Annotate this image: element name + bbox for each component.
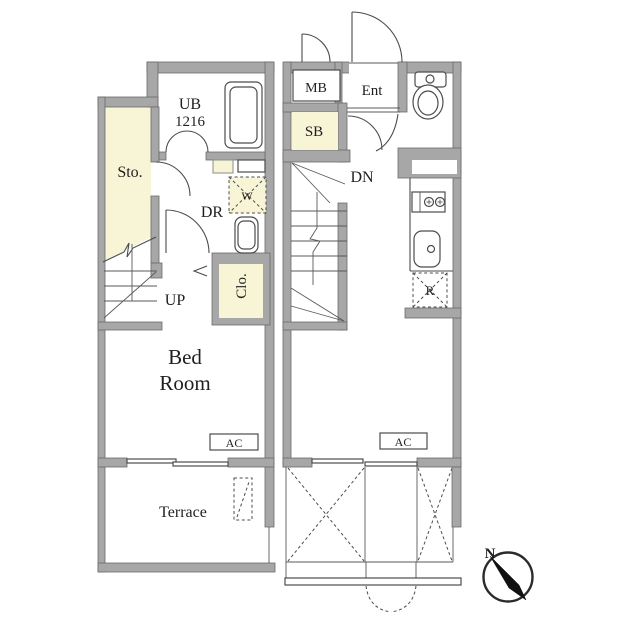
meter-box-door [302, 34, 330, 62]
storage-door-arc [156, 162, 190, 196]
floor-plan-drawing: AC Sto. UB 1216 DR W UP Clo. Bed Room Te… [0, 0, 640, 640]
ac-unit-lower: AC [210, 434, 258, 450]
ac-label-upper: AC [395, 435, 412, 449]
stairs-up-label: UP [165, 292, 186, 309]
vanity-fixture [235, 217, 258, 253]
balcony-gate-arc-left [366, 586, 391, 612]
toilet-door-arc [376, 114, 398, 151]
bedroom-label-line2: Room [159, 371, 210, 395]
washer-label: W [241, 189, 253, 203]
compass: N [484, 546, 533, 602]
stairs-down-label: DN [350, 169, 374, 186]
living-window [312, 459, 417, 466]
kitchen-sink-icon [414, 231, 440, 267]
shoe-box-label: SB [305, 124, 323, 140]
bath-door-arc [166, 131, 208, 152]
entrance-door [352, 12, 402, 62]
north-label: N [485, 546, 496, 562]
balcony [285, 467, 461, 612]
storage-room-area [103, 107, 151, 262]
meter-box-label: MB [305, 81, 327, 96]
bedroom-label-line1: Bed [168, 345, 202, 369]
terrace-slop-sink [234, 478, 252, 520]
terrace-label: Terrace [159, 504, 207, 521]
bedroom-window [127, 459, 228, 466]
bathtub [225, 82, 262, 148]
balcony-wall [452, 467, 461, 527]
shoe-box-door-arc [348, 116, 382, 150]
ac-unit-upper: AC [380, 433, 427, 449]
floor-plan-page: AC Sto. UB 1216 DR W UP Clo. Bed Room Te… [0, 0, 640, 640]
shelf-box [238, 160, 265, 172]
entrance-label: Ent [362, 83, 384, 99]
ac-label-lower: AC [226, 436, 243, 450]
direction-arrow [194, 266, 207, 276]
toilet-icon [413, 72, 446, 119]
stair-break-mark [310, 228, 320, 252]
upper-floor-plan: AC MB Ent SB DN R [283, 12, 461, 612]
balcony-slab [285, 578, 461, 585]
counter-box [213, 160, 233, 173]
unit-bath-label: UB [179, 96, 201, 113]
balcony-gate-arc-right [391, 586, 416, 612]
north-needle [490, 556, 526, 600]
dressing-room-label: DR [201, 204, 224, 221]
lower-floor-plan: AC Sto. UB 1216 DR W UP Clo. Bed Room Te… [98, 62, 275, 572]
refrigerator-label: R [426, 283, 435, 298]
stove-icon [412, 192, 445, 212]
entrance-step [347, 108, 400, 112]
closet-label: Clo. [234, 273, 250, 298]
storage-room-label: Sto. [117, 164, 142, 181]
unit-bath-size-label: 1216 [175, 114, 206, 130]
